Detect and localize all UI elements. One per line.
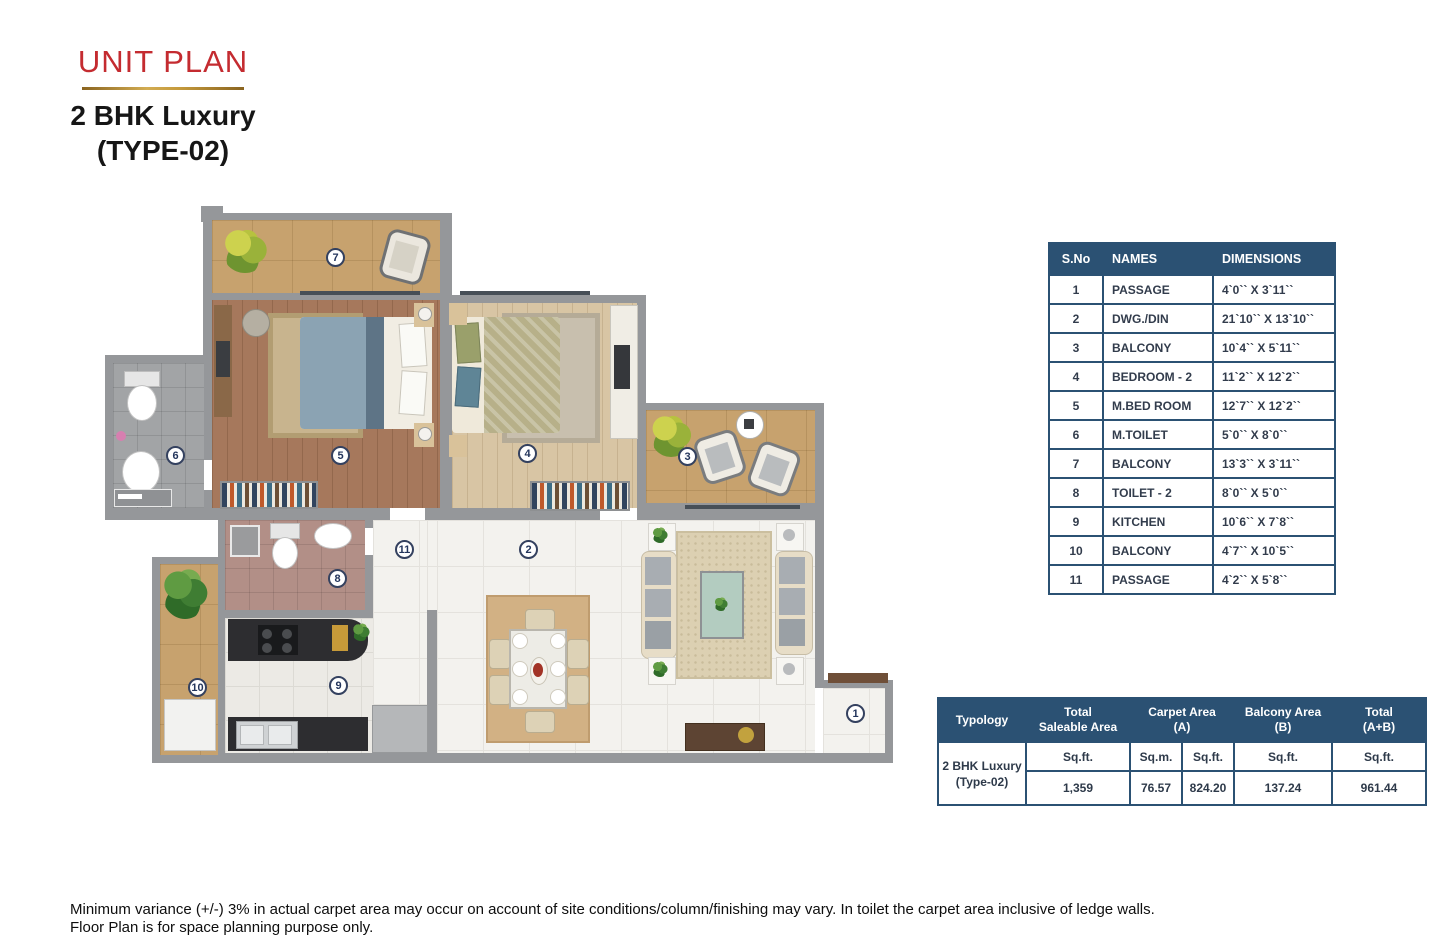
name-cell: TOILET - 2 <box>1103 478 1213 507</box>
col-header-total-saleable: Total Saleable Area <box>1026 698 1130 742</box>
table-row: 6M.TOILET5`0`` X 8`0`` <box>1049 420 1335 449</box>
col-header-carpet-area: Carpet Area (A) <box>1130 698 1234 742</box>
plant <box>714 597 728 611</box>
sliding-door <box>685 505 800 509</box>
plate <box>550 689 566 705</box>
room-number-badge-7: 7 <box>326 248 345 267</box>
lamp <box>418 307 432 321</box>
room-floor-passage-link <box>427 520 437 610</box>
col-header-line: Total <box>1365 705 1393 719</box>
pillow <box>455 366 482 408</box>
wall <box>218 515 225 760</box>
sofa-cushion <box>645 589 671 617</box>
shower-tray <box>230 525 260 557</box>
plant <box>652 527 668 543</box>
disclaimer-line1: Minimum variance (+/-) 3% in actual carp… <box>70 901 1200 919</box>
burner <box>282 643 292 653</box>
wall <box>203 291 212 363</box>
unit-type-line2: (TYPE-02) <box>68 133 258 168</box>
wash-basin <box>314 523 352 549</box>
dim-cell: 8`0`` X 5`0`` <box>1213 478 1335 507</box>
dimensions-table: S.No NAMES DIMENSIONS 1PASSAGE4`0`` X 3`… <box>1048 242 1336 595</box>
dim-cell: 5`0`` X 8`0`` <box>1213 420 1335 449</box>
plant <box>352 623 370 641</box>
room-number-badge-2: 2 <box>519 540 538 559</box>
food <box>533 663 543 677</box>
wall <box>152 557 225 564</box>
table-row: 9KITCHEN10`6`` X 7`8`` <box>1049 507 1335 536</box>
wall <box>637 403 824 410</box>
wall <box>440 213 452 508</box>
tv-unit <box>216 341 230 377</box>
room-number-badge-11: 11 <box>395 540 414 559</box>
wash-basin <box>122 451 160 493</box>
sno-cell: 9 <box>1049 507 1103 536</box>
wall <box>152 557 160 759</box>
area-table-header-row: Typology Total Saleable Area Carpet Area… <box>938 698 1426 742</box>
wall <box>204 490 212 508</box>
lamp <box>418 427 432 441</box>
tv <box>614 345 630 389</box>
shower-drain <box>118 494 142 499</box>
dim-cell: 11`2`` X 12`2`` <box>1213 362 1335 391</box>
name-cell: M.TOILET <box>1103 420 1213 449</box>
dining-chair <box>489 675 511 705</box>
unit-cell: Sq.ft. <box>1332 742 1426 771</box>
disclaimer-line2: Floor Plan is for space planning purpose… <box>70 919 1200 937</box>
pillow <box>398 370 427 416</box>
col-header-line: Saleable Area <box>1039 720 1117 734</box>
name-cell: BALCONY <box>1103 449 1213 478</box>
dimensions-table-header-row: S.No NAMES DIMENSIONS <box>1049 243 1335 275</box>
col-header-total-ab: Total (A+B) <box>1332 698 1426 742</box>
nightstand <box>449 435 467 457</box>
table-row: 10BALCONY4`7`` X 10`5`` <box>1049 536 1335 565</box>
area-summary-table: Typology Total Saleable Area Carpet Area… <box>937 697 1427 806</box>
table-row: 4BEDROOM - 211`2`` X 12`2`` <box>1049 362 1335 391</box>
name-cell: BALCONY <box>1103 333 1213 362</box>
area-table-units-row: 2 BHK Luxury (Type-02) Sq.ft. Sq.m. Sq.f… <box>938 742 1426 771</box>
sno-cell: 11 <box>1049 565 1103 594</box>
plant <box>652 661 668 677</box>
wall <box>152 753 893 763</box>
name-cell: KITCHEN <box>1103 507 1213 536</box>
sink-bowl <box>240 725 264 745</box>
wall <box>427 610 437 753</box>
sofa-cushion <box>779 619 805 646</box>
bed-blanket <box>484 317 560 433</box>
value-cell: 961.44 <box>1332 771 1426 805</box>
bed-runner <box>366 317 384 429</box>
unit-cell: Sq.ft. <box>1234 742 1332 771</box>
sno-cell: 1 <box>1049 275 1103 304</box>
floor-plan: 1 2 3 4 5 6 7 8 9 10 11 <box>100 205 900 780</box>
sno-cell: 6 <box>1049 420 1103 449</box>
toilet-wc <box>127 385 157 421</box>
dim-cell: 10`6`` X 7`8`` <box>1213 507 1335 536</box>
table-row: 5M.BED ROOM12`7`` X 12`2`` <box>1049 391 1335 420</box>
dining-chair <box>525 711 555 733</box>
typology-line: 2 BHK Luxury <box>942 759 1021 773</box>
sno-cell: 8 <box>1049 478 1103 507</box>
plate <box>550 661 566 677</box>
washing-machine <box>164 699 216 751</box>
dim-cell: 21`10`` X 13`10`` <box>1213 304 1335 333</box>
table-row: 3BALCONY10`4`` X 5`11`` <box>1049 333 1335 362</box>
col-header-typology: Typology <box>938 698 1026 742</box>
table-row: 8TOILET - 28`0`` X 5`0`` <box>1049 478 1335 507</box>
toiletry <box>116 431 126 441</box>
wall <box>815 403 824 688</box>
wall <box>105 508 390 520</box>
toilet-wc <box>272 537 298 569</box>
wall <box>885 688 893 761</box>
wall <box>225 610 373 618</box>
cutting-board <box>332 625 348 651</box>
decor <box>738 727 754 743</box>
room-number-badge-1: 1 <box>846 704 865 723</box>
burner <box>262 629 272 639</box>
wall <box>105 355 211 363</box>
room-number-badge-3: 3 <box>678 447 697 466</box>
room-number-badge-5: 5 <box>331 446 350 465</box>
dim-cell: 4`2`` X 5`8`` <box>1213 565 1335 594</box>
sofa-cushion <box>779 588 805 615</box>
col-header-line: Total <box>1064 705 1092 719</box>
typology-cell: 2 BHK Luxury (Type-02) <box>938 742 1026 805</box>
table-decor <box>783 663 795 675</box>
page-header: UNIT PLAN 2 BHK Luxury (TYPE-02) <box>68 44 258 168</box>
name-cell: PASSAGE <box>1103 565 1213 594</box>
dim-cell: 4`0`` X 3`11`` <box>1213 275 1335 304</box>
name-cell: M.BED ROOM <box>1103 391 1213 420</box>
wall <box>365 520 373 528</box>
room-number-badge-8: 8 <box>328 569 347 588</box>
sno-cell: 7 <box>1049 449 1103 478</box>
plate <box>512 689 528 705</box>
pillow <box>398 322 427 368</box>
col-header-sno: S.No <box>1049 243 1103 275</box>
value-cell: 1,359 <box>1026 771 1130 805</box>
page-title: UNIT PLAN <box>68 44 258 80</box>
wardrobe <box>220 481 318 509</box>
sliding-door <box>300 291 420 295</box>
value-cell: 76.57 <box>1130 771 1182 805</box>
wall <box>203 213 212 295</box>
unit-cell: Sq.ft. <box>1026 742 1130 771</box>
col-header-line: (B) <box>1275 720 1292 734</box>
unit-cell: Sq.m. <box>1130 742 1182 771</box>
wall <box>447 295 646 303</box>
gold-rule <box>82 87 244 90</box>
wall <box>105 355 113 516</box>
dining-chair <box>489 639 511 669</box>
wall <box>365 555 373 610</box>
plate <box>512 633 528 649</box>
plant <box>162 567 208 619</box>
col-header-line: Balcony Area <box>1245 705 1321 719</box>
table-row: 11PASSAGE4`2`` X 5`8`` <box>1049 565 1335 594</box>
brochure-page: UNIT PLAN 2 BHK Luxury (TYPE-02) <box>0 0 1440 949</box>
sink-bowl <box>268 725 292 745</box>
dim-cell: 10`4`` X 5`11`` <box>1213 333 1335 362</box>
room-number-badge-4: 4 <box>518 444 537 463</box>
table-row: 7BALCONY13`3`` X 3`11`` <box>1049 449 1335 478</box>
col-header-line: (A+B) <box>1363 720 1395 734</box>
room-number-badge-6: 6 <box>166 446 185 465</box>
plate <box>512 661 528 677</box>
name-cell: DWG./DIN <box>1103 304 1213 333</box>
name-cell: BEDROOM - 2 <box>1103 362 1213 391</box>
dim-cell: 4`7`` X 10`5`` <box>1213 536 1335 565</box>
sofa-cushion <box>645 621 671 649</box>
table-decor <box>783 529 795 541</box>
sofa-cushion <box>779 557 805 584</box>
sno-cell: 3 <box>1049 333 1103 362</box>
dim-cell: 13`3`` X 3`11`` <box>1213 449 1335 478</box>
col-header-dimensions: DIMENSIONS <box>1213 243 1335 275</box>
col-header-balcony-area: Balcony Area (B) <box>1234 698 1332 742</box>
sno-cell: 4 <box>1049 362 1103 391</box>
room-number-badge-10: 10 <box>188 678 207 697</box>
name-cell: PASSAGE <box>1103 275 1213 304</box>
sno-cell: 5 <box>1049 391 1103 420</box>
disclaimer: Minimum variance (+/-) 3% in actual carp… <box>70 901 1200 936</box>
entry-shelf <box>828 673 888 683</box>
burner <box>282 629 292 639</box>
chair <box>242 309 270 337</box>
col-header-line: Carpet Area <box>1148 705 1216 719</box>
col-header-names: NAMES <box>1103 243 1213 275</box>
unit-cell: Sq.ft. <box>1182 742 1234 771</box>
table-row: 2DWG./DIN21`10`` X 13`10`` <box>1049 304 1335 333</box>
typology-line: (Type-02) <box>956 775 1008 789</box>
wall <box>204 363 212 460</box>
window <box>460 291 590 295</box>
pillow <box>455 322 482 364</box>
dim-cell: 12`7`` X 12`2`` <box>1213 391 1335 420</box>
burner <box>262 643 272 653</box>
dining-chair <box>525 609 555 631</box>
name-cell: BALCONY <box>1103 536 1213 565</box>
col-header-line: (A) <box>1174 720 1191 734</box>
value-cell: 824.20 <box>1182 771 1234 805</box>
sno-cell: 10 <box>1049 536 1103 565</box>
dining-chair <box>567 639 589 669</box>
table-decor <box>744 419 754 429</box>
sno-cell: 2 <box>1049 304 1103 333</box>
value-cell: 137.24 <box>1234 771 1332 805</box>
sofa-cushion <box>645 557 671 585</box>
table-row: 1PASSAGE4`0`` X 3`11`` <box>1049 275 1335 304</box>
nightstand <box>449 303 467 325</box>
dining-chair <box>567 675 589 705</box>
wardrobe <box>530 481 630 511</box>
unit-type-line1: 2 BHK Luxury <box>68 98 258 133</box>
room-number-badge-9: 9 <box>329 676 348 695</box>
wall <box>637 295 646 508</box>
refrigerator <box>372 705 428 753</box>
plate <box>550 633 566 649</box>
plant <box>222 227 268 273</box>
